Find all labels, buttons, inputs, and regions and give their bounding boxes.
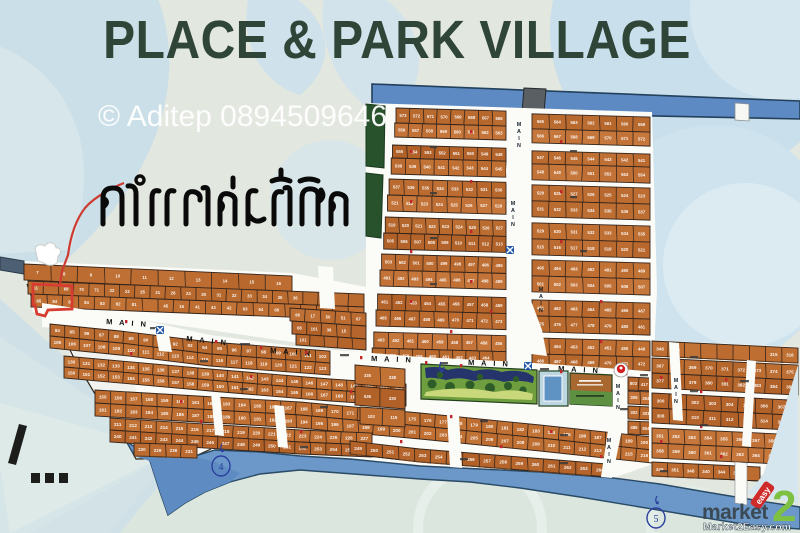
svg-text:197: 197: [346, 424, 354, 429]
svg-text:344: 344: [718, 470, 726, 475]
svg-text:550: 550: [571, 171, 579, 176]
svg-text:523: 523: [421, 202, 429, 207]
svg-text:518: 518: [587, 246, 595, 251]
svg-text:515: 515: [537, 245, 545, 250]
svg-text:213: 213: [145, 424, 153, 429]
svg-text:496: 496: [482, 262, 490, 267]
svg-text:494: 494: [425, 277, 433, 282]
svg-text:510: 510: [455, 241, 463, 246]
svg-text:567: 567: [554, 134, 562, 139]
svg-text:357: 357: [752, 438, 760, 443]
svg-text:187: 187: [594, 435, 602, 440]
svg-text:169: 169: [315, 408, 323, 413]
svg-text:364: 364: [752, 453, 760, 458]
svg-text:146: 146: [305, 380, 313, 385]
svg-text:485: 485: [630, 425, 638, 430]
svg-text:238: 238: [170, 448, 178, 453]
svg-text:248: 248: [237, 442, 245, 447]
svg-text:521: 521: [638, 247, 646, 252]
svg-text:167: 167: [320, 393, 328, 398]
svg-text:43: 43: [211, 305, 216, 310]
svg-text:473: 473: [495, 319, 503, 324]
svg-text:A: A: [607, 445, 611, 451]
svg-text:96: 96: [232, 347, 238, 352]
svg-text:563: 563: [495, 130, 503, 135]
svg-text:372: 372: [737, 367, 745, 372]
svg-text:522: 522: [429, 224, 437, 229]
svg-text:190: 190: [238, 416, 246, 421]
svg-text:561: 561: [604, 121, 612, 126]
svg-text:300: 300: [657, 398, 665, 403]
svg-text:472: 472: [481, 319, 489, 324]
svg-text:359: 359: [672, 449, 680, 454]
svg-text:458: 458: [481, 303, 489, 308]
svg-text:135: 135: [142, 366, 150, 371]
svg-text:PLACE & PARK VILLAGE: PLACE & PARK VILLAGE: [103, 9, 691, 69]
svg-text:384: 384: [770, 384, 778, 389]
svg-text:504: 504: [587, 283, 595, 288]
svg-text:552: 552: [439, 150, 447, 155]
svg-text:95: 95: [217, 346, 223, 351]
svg-text:115: 115: [390, 415, 398, 420]
svg-text:508: 508: [428, 240, 436, 245]
svg-text:509: 509: [441, 240, 449, 245]
svg-text:346: 346: [656, 346, 664, 351]
svg-text:118: 118: [245, 360, 253, 365]
svg-text:M: M: [517, 122, 522, 128]
svg-text:492: 492: [397, 276, 405, 281]
svg-text:109: 109: [112, 346, 120, 351]
svg-text:535: 535: [638, 231, 646, 236]
svg-text:468: 468: [423, 317, 431, 322]
svg-text:21: 21: [155, 290, 160, 295]
svg-text:506: 506: [401, 239, 409, 244]
svg-text:534: 534: [437, 186, 445, 191]
svg-text:466: 466: [537, 359, 545, 364]
svg-text:250: 250: [370, 448, 378, 453]
svg-text:499: 499: [495, 279, 503, 284]
svg-text:531: 531: [537, 207, 545, 212]
svg-text:64: 64: [259, 307, 264, 312]
svg-text:133: 133: [112, 364, 120, 369]
svg-text:198: 198: [362, 425, 370, 430]
svg-text:22: 22: [110, 288, 115, 293]
svg-text:105: 105: [54, 340, 62, 345]
svg-text:547: 547: [537, 155, 545, 160]
svg-text:539: 539: [409, 164, 417, 169]
svg-text:478: 478: [587, 323, 595, 328]
svg-text:549: 549: [554, 170, 562, 175]
svg-text:570: 570: [604, 135, 612, 140]
svg-text:498: 498: [454, 262, 462, 267]
svg-text:530: 530: [554, 229, 562, 234]
svg-text:367: 367: [656, 363, 664, 368]
svg-text:84: 84: [84, 300, 89, 305]
svg-text:494: 494: [554, 266, 562, 271]
svg-text:108: 108: [98, 345, 106, 350]
svg-text:68: 68: [297, 326, 302, 331]
svg-text:495: 495: [496, 263, 504, 268]
svg-text:262: 262: [564, 465, 572, 470]
svg-text:492: 492: [587, 267, 595, 272]
svg-text:562: 562: [482, 130, 490, 135]
svg-text:223: 223: [299, 434, 307, 439]
svg-text:543: 543: [604, 157, 612, 162]
svg-text:529: 529: [537, 191, 545, 196]
svg-text:86: 86: [84, 331, 90, 336]
svg-text:31: 31: [217, 292, 222, 297]
svg-text:532: 532: [554, 207, 562, 212]
svg-text:553: 553: [424, 150, 432, 155]
svg-text:210: 210: [548, 443, 556, 448]
svg-text:375: 375: [786, 370, 794, 375]
svg-text:M: M: [511, 201, 516, 207]
svg-text:469: 469: [587, 360, 595, 365]
svg-text:139: 139: [201, 372, 209, 377]
svg-text:455: 455: [495, 341, 503, 346]
svg-text:12: 12: [169, 276, 174, 281]
svg-text:42: 42: [227, 306, 232, 311]
svg-text:530: 530: [495, 188, 503, 193]
svg-text:M: M: [674, 378, 679, 384]
svg-text:30: 30: [201, 292, 206, 297]
svg-text:102: 102: [319, 354, 327, 359]
svg-text:A: A: [511, 208, 515, 214]
svg-text:145: 145: [291, 379, 299, 384]
svg-text:215: 215: [176, 426, 184, 431]
svg-text:560: 560: [621, 121, 629, 126]
svg-text:566: 566: [496, 116, 504, 121]
svg-text:227: 227: [360, 436, 368, 441]
svg-text:546: 546: [554, 156, 562, 161]
svg-text:480: 480: [621, 324, 629, 329]
svg-text:461: 461: [407, 339, 415, 344]
svg-text:254: 254: [330, 447, 338, 452]
svg-text:15: 15: [341, 329, 346, 334]
svg-text:65: 65: [37, 298, 42, 303]
svg-text:175: 175: [408, 416, 416, 421]
svg-text:261: 261: [548, 464, 556, 469]
svg-text:241: 241: [129, 435, 137, 440]
svg-text:528: 528: [495, 204, 503, 209]
svg-text:212: 212: [579, 447, 587, 452]
svg-text:458: 458: [451, 340, 459, 345]
svg-text:176: 176: [424, 418, 432, 423]
svg-text:219: 219: [237, 430, 245, 435]
svg-text:14: 14: [223, 279, 228, 284]
svg-text:247: 247: [222, 441, 230, 446]
svg-text:117: 117: [230, 359, 238, 364]
svg-text:158: 158: [187, 381, 195, 386]
svg-text:371: 371: [721, 367, 729, 372]
svg-text:M: M: [539, 287, 544, 293]
svg-text:209: 209: [532, 442, 540, 447]
svg-text:560: 560: [454, 129, 462, 134]
svg-text:184: 184: [145, 410, 153, 415]
svg-text:254: 254: [435, 455, 443, 460]
svg-text:154: 154: [127, 376, 135, 381]
svg-text:525: 525: [469, 225, 477, 230]
svg-text:181: 181: [99, 408, 107, 413]
svg-text:452: 452: [395, 300, 403, 305]
svg-text:568: 568: [468, 115, 476, 120]
svg-text:123: 123: [319, 366, 327, 371]
svg-text:177: 177: [439, 419, 447, 424]
svg-text:206: 206: [486, 437, 494, 442]
svg-text:189: 189: [625, 439, 633, 444]
svg-text:524: 524: [456, 225, 464, 230]
svg-text:507: 507: [414, 240, 422, 245]
svg-text:183: 183: [532, 429, 540, 434]
svg-text:158: 158: [145, 397, 153, 402]
svg-text:369: 369: [689, 365, 697, 370]
svg-text:215: 215: [625, 452, 633, 457]
svg-text:122: 122: [304, 365, 312, 370]
svg-text:370: 370: [705, 366, 713, 371]
svg-text:134: 134: [127, 365, 135, 370]
svg-text:531: 531: [571, 230, 579, 235]
svg-text:114: 114: [186, 355, 194, 360]
svg-text:527: 527: [480, 203, 488, 208]
svg-text:226: 226: [345, 436, 353, 441]
svg-text:533: 533: [571, 208, 579, 213]
svg-text:460: 460: [422, 339, 430, 344]
svg-text:572: 572: [638, 136, 646, 141]
svg-text:23: 23: [125, 289, 130, 294]
svg-text:A: A: [674, 385, 678, 391]
svg-text:90: 90: [143, 338, 149, 343]
svg-text:527: 527: [571, 192, 579, 197]
svg-text:187: 187: [192, 413, 200, 418]
svg-text:67: 67: [356, 317, 361, 322]
svg-text:153: 153: [112, 375, 120, 380]
svg-text:467: 467: [638, 308, 646, 313]
svg-text:13: 13: [196, 277, 201, 282]
svg-text:499: 499: [440, 261, 448, 266]
svg-text:361: 361: [704, 451, 712, 456]
svg-text:456: 456: [453, 302, 461, 307]
svg-text:N: N: [616, 405, 620, 411]
svg-text:355: 355: [720, 436, 728, 441]
svg-text:525: 525: [604, 192, 612, 197]
svg-text:340: 340: [702, 469, 710, 474]
svg-text:302: 302: [630, 410, 638, 415]
svg-text:258: 258: [499, 460, 507, 465]
svg-text:524: 524: [621, 193, 629, 198]
svg-text:41: 41: [195, 305, 200, 310]
svg-text:137: 137: [172, 369, 180, 374]
svg-text:306: 306: [760, 404, 768, 409]
svg-text:161: 161: [231, 385, 239, 390]
svg-text:497: 497: [468, 262, 476, 267]
svg-text:156: 156: [157, 379, 165, 384]
svg-text:550: 550: [467, 151, 475, 156]
svg-text:454: 454: [554, 344, 562, 349]
svg-text:A: A: [517, 129, 521, 135]
svg-text:220: 220: [253, 431, 261, 436]
svg-text:163: 163: [261, 388, 269, 393]
svg-text:71: 71: [94, 288, 99, 293]
svg-text:220: 220: [138, 447, 146, 452]
svg-text:569: 569: [454, 115, 462, 120]
svg-text:216: 216: [191, 427, 199, 432]
svg-text:513: 513: [496, 242, 504, 247]
svg-text:212: 212: [129, 423, 137, 428]
svg-text:35: 35: [278, 295, 283, 300]
svg-text:531: 531: [481, 187, 489, 192]
svg-text:249: 249: [253, 443, 261, 448]
svg-text:449: 449: [638, 346, 646, 351]
svg-text:471: 471: [466, 318, 474, 323]
svg-text:243: 243: [160, 437, 168, 442]
svg-text:312: 312: [726, 417, 734, 422]
svg-text:181: 181: [501, 426, 509, 431]
svg-text:526: 526: [587, 192, 595, 197]
svg-text:159: 159: [161, 398, 169, 403]
svg-text:525: 525: [451, 202, 459, 207]
svg-text:537: 537: [638, 209, 646, 214]
svg-text:A: A: [539, 294, 543, 300]
svg-text:250: 250: [268, 444, 276, 449]
svg-text:493: 493: [411, 277, 419, 282]
svg-text:455: 455: [438, 301, 446, 306]
svg-text:542: 542: [452, 165, 460, 170]
svg-text:231: 231: [185, 449, 193, 454]
svg-text:465: 465: [604, 307, 612, 312]
svg-text:459: 459: [495, 303, 503, 308]
svg-text:229: 229: [154, 448, 162, 453]
svg-text:107: 107: [83, 343, 91, 348]
svg-text:180: 180: [486, 424, 494, 429]
svg-text:569: 569: [587, 135, 595, 140]
svg-text:310: 310: [691, 415, 699, 420]
svg-text:541: 541: [438, 165, 446, 170]
svg-text:554: 554: [638, 172, 646, 177]
svg-text:157: 157: [130, 396, 138, 401]
svg-text:45: 45: [163, 303, 168, 308]
svg-text:532: 532: [466, 187, 474, 192]
svg-text:83: 83: [100, 301, 105, 306]
svg-text:216: 216: [640, 453, 648, 458]
svg-text:520: 520: [621, 247, 629, 252]
svg-text:263: 263: [580, 466, 588, 471]
svg-text:183: 183: [130, 409, 138, 414]
svg-text:10: 10: [115, 274, 120, 279]
svg-text:82: 82: [116, 301, 121, 306]
svg-text:520: 520: [402, 223, 410, 228]
svg-text:557: 557: [412, 128, 420, 133]
svg-text:113: 113: [172, 353, 180, 358]
svg-text:417: 417: [641, 382, 649, 387]
svg-text:493: 493: [571, 267, 579, 272]
svg-text:363: 363: [736, 452, 744, 457]
svg-text:456: 456: [480, 341, 488, 346]
svg-text:66: 66: [295, 313, 300, 318]
svg-text:545: 545: [571, 156, 579, 161]
svg-text:536: 536: [407, 185, 415, 190]
svg-text:98: 98: [261, 350, 267, 355]
svg-text:50: 50: [326, 315, 331, 320]
svg-text:116: 116: [216, 358, 224, 363]
svg-text:556: 556: [398, 128, 406, 133]
svg-text:25: 25: [140, 289, 145, 294]
svg-text:526: 526: [482, 225, 490, 230]
svg-text:136: 136: [157, 368, 165, 373]
svg-text:314: 314: [760, 419, 768, 424]
svg-text:495: 495: [537, 266, 545, 271]
svg-text:203: 203: [439, 432, 447, 437]
svg-text:251: 251: [386, 450, 394, 455]
svg-text:450: 450: [621, 346, 629, 351]
svg-text:70: 70: [79, 287, 84, 292]
svg-text:164: 164: [238, 403, 246, 408]
svg-text:311: 311: [709, 416, 717, 421]
svg-text:16: 16: [276, 281, 281, 286]
svg-text:200: 200: [393, 428, 401, 433]
svg-text:249: 249: [354, 446, 362, 451]
svg-text:213: 213: [594, 448, 602, 453]
svg-text:467: 467: [409, 317, 417, 322]
svg-text:224: 224: [314, 434, 322, 439]
svg-text:163: 163: [223, 402, 231, 407]
svg-text:171: 171: [346, 411, 354, 416]
svg-text:305: 305: [630, 395, 638, 400]
svg-text:160: 160: [216, 384, 224, 389]
svg-text:186: 186: [579, 434, 587, 439]
svg-text:451: 451: [604, 345, 612, 350]
svg-text:512: 512: [482, 241, 490, 246]
svg-text:502: 502: [554, 282, 562, 287]
svg-text:519: 519: [604, 246, 612, 251]
svg-text:533: 533: [604, 230, 612, 235]
svg-text:157: 157: [172, 380, 180, 385]
svg-text:N: N: [511, 222, 515, 228]
svg-text:476: 476: [554, 322, 562, 327]
svg-text:256: 256: [467, 457, 475, 462]
svg-text:523: 523: [638, 193, 646, 198]
svg-text:17: 17: [310, 314, 315, 319]
svg-text:217: 217: [206, 428, 214, 433]
svg-text:84: 84: [52, 299, 57, 304]
svg-text:32: 32: [232, 293, 237, 298]
svg-text:101: 101: [311, 327, 319, 332]
svg-text:N: N: [674, 399, 678, 405]
svg-text:81: 81: [132, 302, 137, 307]
svg-text:4: 4: [219, 462, 224, 473]
svg-text:260: 260: [532, 462, 540, 467]
svg-text:535: 535: [422, 186, 430, 191]
svg-text:155: 155: [142, 377, 150, 382]
svg-text:540: 540: [424, 165, 432, 170]
svg-text:558: 558: [426, 129, 434, 134]
svg-text:168: 168: [300, 406, 308, 411]
svg-text:536: 536: [621, 209, 629, 214]
svg-text:211: 211: [563, 445, 571, 450]
svg-text:159: 159: [201, 383, 209, 388]
svg-text:571: 571: [427, 114, 435, 119]
svg-text:240: 240: [114, 434, 122, 439]
svg-text:252: 252: [403, 451, 411, 456]
svg-text:544: 544: [481, 166, 489, 171]
svg-text:36: 36: [293, 295, 298, 300]
svg-text:555: 555: [396, 149, 404, 154]
svg-text:470: 470: [452, 318, 460, 323]
svg-text:150: 150: [68, 371, 76, 376]
svg-text:195: 195: [315, 421, 323, 426]
svg-text:527: 527: [496, 226, 504, 231]
svg-text:194: 194: [300, 419, 308, 424]
svg-text:491: 491: [604, 267, 612, 272]
